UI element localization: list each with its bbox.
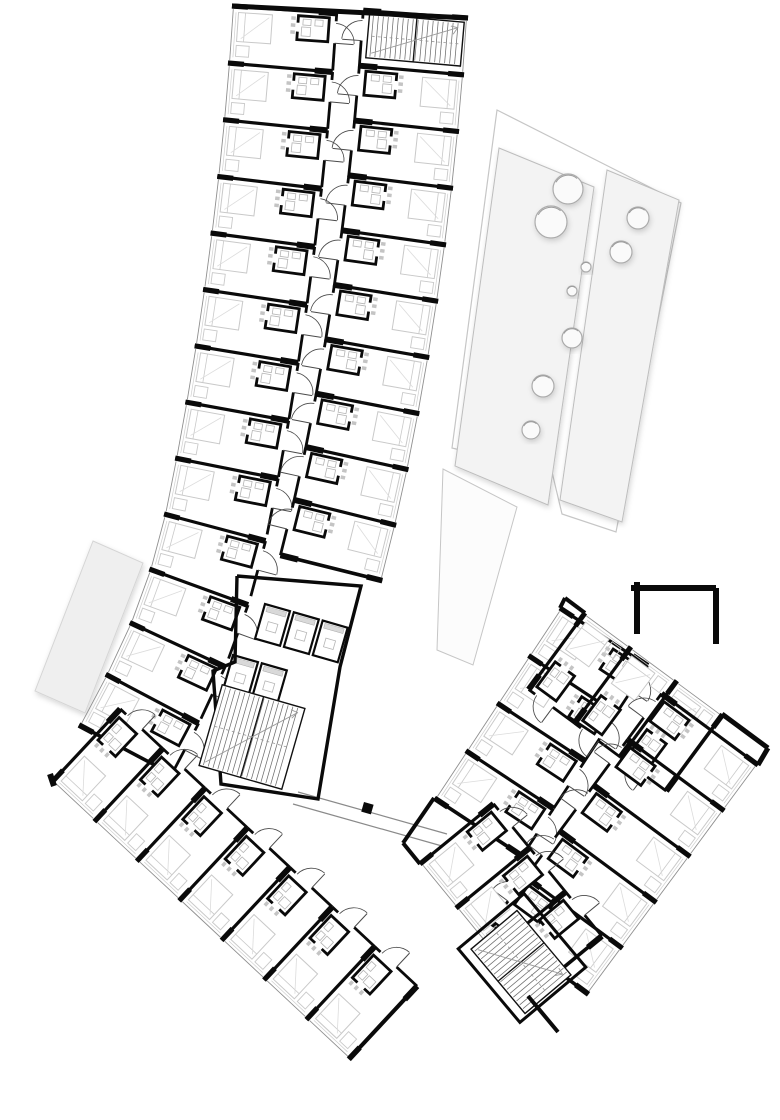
north-wing-west-rooms: [78, 3, 357, 783]
hotel-room: [223, 60, 352, 130]
roof-terrace: [437, 110, 681, 665]
floor-plan-page: [0, 0, 780, 1120]
floor-plan-canvas: [0, 0, 780, 1120]
hotel-room: [79, 672, 217, 784]
structural-walls: [50, 6, 768, 1059]
east-wing-ne-rooms: [515, 611, 725, 806]
staircase-icon: [366, 14, 464, 66]
